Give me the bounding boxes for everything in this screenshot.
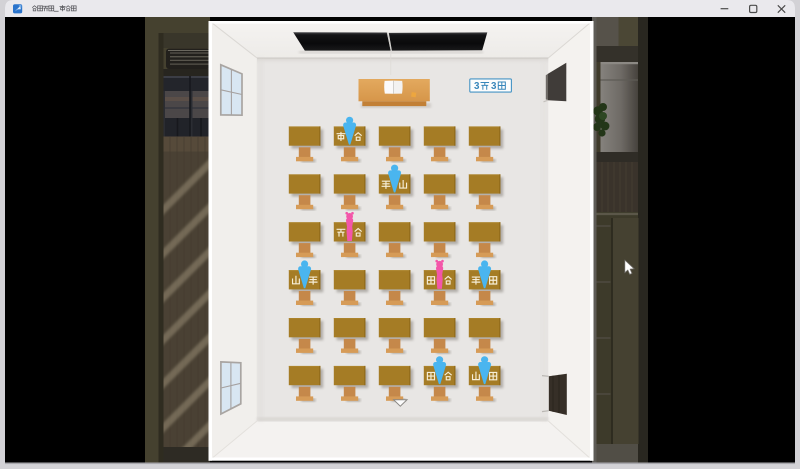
svg-text:3: 3 (491, 81, 497, 92)
svg-text:3: 3 (474, 81, 480, 92)
